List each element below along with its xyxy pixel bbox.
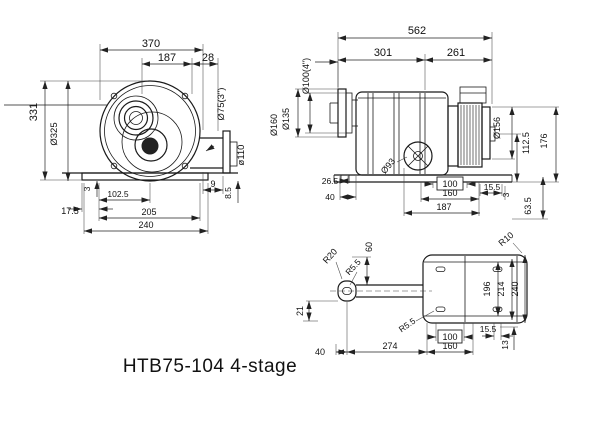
dim-slot-length: 15.5 (480, 324, 497, 334)
dim-inlet-bolt-circle: Ø135 (281, 108, 291, 130)
dim-bolt-half-spacing: 102.5 (107, 189, 129, 199)
dim-flange-gap: 9 (210, 179, 215, 189)
dim-inlet-flange-dia: Ø160 (269, 114, 279, 136)
bottom-view: R20 R5.5 R10 R5.5 60 21 196 214 240 40 2… (295, 230, 527, 357)
dim-slot-radius: R5.5 (397, 316, 418, 335)
dim-plate-width: 240 (510, 281, 520, 296)
inlet-ring (114, 96, 158, 140)
dim-motor-length: 261 (447, 47, 465, 59)
dim-base-edge-offset: 17.5 (61, 206, 79, 216)
dim-bolt-span-x-inner: 100 (442, 332, 457, 342)
dim-inlet-pipe-dia: Ø100(4") (301, 58, 311, 94)
housing-side (356, 92, 448, 175)
dim-tab-slot-radius: R5.5 (343, 257, 363, 277)
dim-base-width: 240 (138, 220, 153, 230)
dim-foot-width: 40 (325, 192, 335, 202)
outlet-flange (223, 131, 230, 173)
inlet-ring (125, 107, 148, 130)
dim-base-lip: 3 (82, 186, 92, 191)
dim-slot-offset: 15.5 (484, 182, 501, 192)
dim-front-outlet-offset: 28 (202, 52, 214, 64)
dim-bolt-span-y-mid: 214 (496, 281, 506, 296)
inlet-flange-inner (346, 93, 352, 133)
dim-slot-edge: 3 (501, 192, 511, 197)
dim-port-flange-dia: Ø93 (379, 156, 398, 175)
dim-flange-thickness: 8.5 (223, 187, 233, 199)
dim-shaft-height: 112.5 (521, 132, 531, 154)
dim-housing-dia: Ø325 (49, 122, 60, 145)
dim-plate-corner-radius: R10 (496, 230, 515, 248)
motor-adapter (448, 106, 458, 166)
dim-motor-dia: Ø156 (492, 117, 502, 139)
dim-front-overall-width: 370 (142, 38, 160, 50)
blower-dimension-drawing: 370 187 28 Ø75(3") ø110 331 Ø325 3 102.5… (0, 0, 600, 425)
dim-outlet-flange-dia: ø110 (236, 145, 247, 166)
side-view: 562 301 261 Ø100(4") Ø160 Ø135 Ø156 112.… (269, 25, 559, 219)
housing-outline (100, 81, 200, 181)
dim-base-height: 63.5 (523, 197, 533, 215)
dim-tab-offset: 60 (364, 242, 374, 252)
dim-tab-width: 40 (315, 347, 325, 357)
dim-bolt-spacing-outer-x: 160 (442, 188, 457, 198)
dim-housing-length: 301 (374, 47, 392, 59)
dim-overall-length: 562 (408, 25, 426, 37)
dim-motor-top-height: 176 (539, 133, 549, 148)
dim-front-inlet-offset: 187 (158, 52, 176, 64)
motor-end-cap (482, 107, 490, 159)
inlet-ring (130, 112, 143, 125)
dim-outlet-pipe-dia: Ø75(3") (216, 88, 227, 121)
bolt-slot (493, 307, 502, 312)
front-view: 370 187 28 Ø75(3") ø110 331 Ø325 3 102.5… (4, 38, 247, 234)
dim-tab-drop: 21 (295, 306, 305, 316)
drawing-title: HTB75-104 4-stage (123, 356, 297, 377)
bolt-slot (436, 307, 445, 312)
dim-plate-length: 274 (382, 341, 397, 351)
dim-bolt-spacing: 205 (141, 207, 156, 217)
shaft-hub (142, 138, 159, 155)
dim-front-overall-height: 331 (28, 103, 40, 121)
dim-slot-edge-offset: 13 (500, 340, 510, 350)
inlet-flange (338, 89, 346, 137)
motor-junction-box (460, 87, 486, 103)
technical-drawing-page: 370 187 28 Ø75(3") ø110 331 Ø325 3 102.5… (0, 0, 600, 425)
dim-foot-offset: 26.5 (322, 176, 339, 186)
bolt-slot (493, 267, 502, 272)
bolt-slot (436, 267, 445, 272)
flow-arrow (206, 146, 214, 151)
dim-base-length: 187 (436, 202, 451, 212)
dim-bolt-span-y-inner: 196 (482, 281, 492, 296)
